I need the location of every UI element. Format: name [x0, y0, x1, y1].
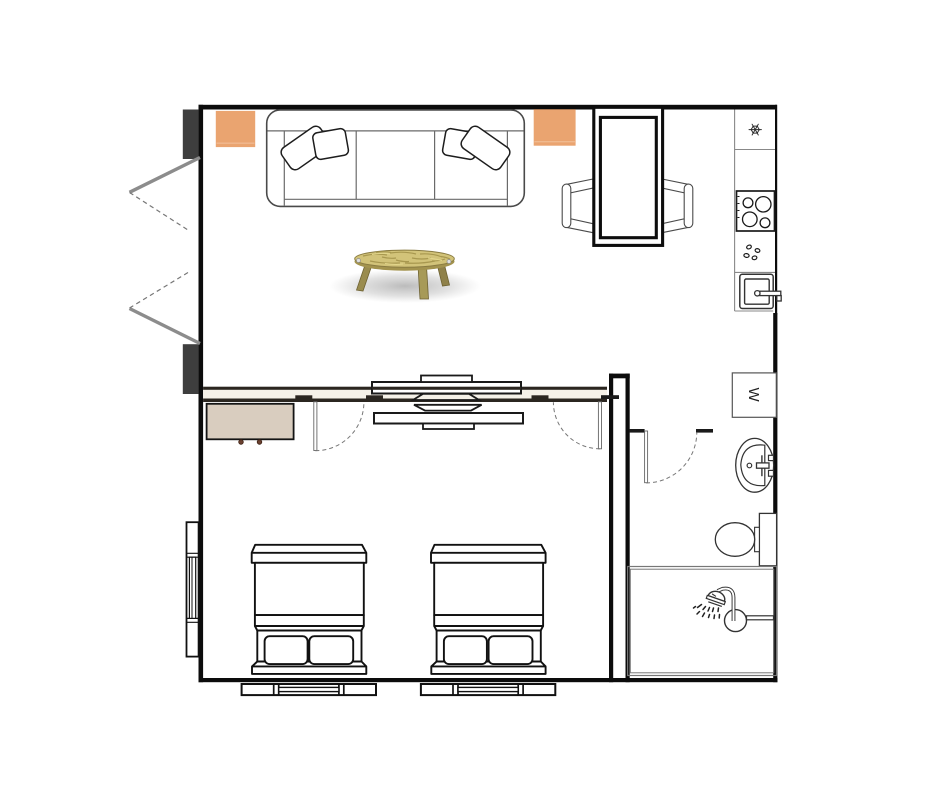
svg-text:W: W	[745, 388, 762, 403]
